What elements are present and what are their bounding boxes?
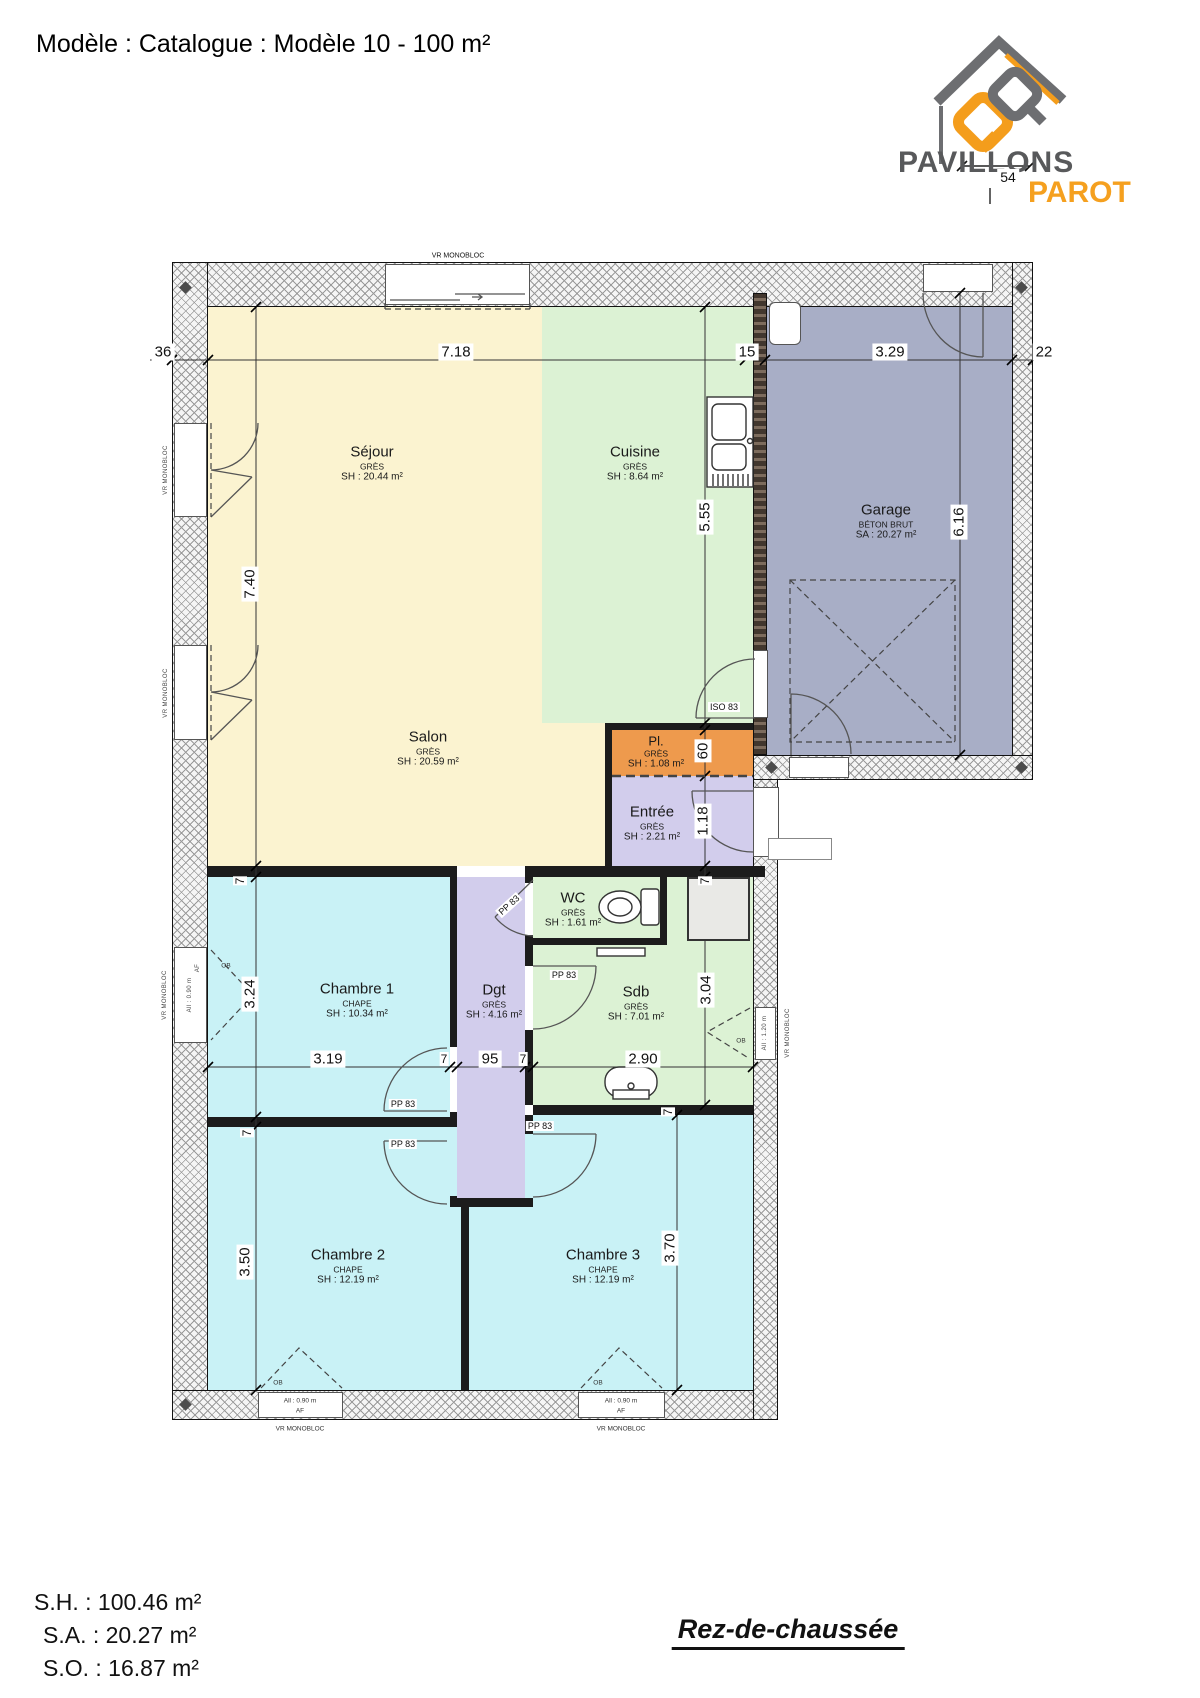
wall-main-right — [525, 866, 765, 877]
door-iso83-opening — [753, 650, 768, 718]
window-tag-allege: All : 0.90 m — [284, 1398, 317, 1405]
dim-7-40: 7.40 — [242, 566, 259, 601]
room-label-sdb: Sdb GRÈS SH : 7.01 m² — [608, 983, 664, 1023]
door-tag-iso83: ISO 83 — [708, 702, 740, 712]
window-tag-ob: OB — [273, 1380, 282, 1387]
dim-60: 60 — [695, 740, 712, 763]
room-dgt-fill — [457, 877, 525, 1198]
dim-wall-36: 36 — [152, 344, 175, 361]
wall-dgt-right-nub1 — [525, 877, 533, 883]
door-tag-pp83: PP 83 — [526, 1121, 554, 1131]
room-label-garage: Garage BÉTON BRUT SA : 20.27 m² — [856, 501, 917, 541]
window-tag-vr-monobloc: VR MONOBLOC — [162, 970, 168, 1019]
dim-1-18: 1.18 — [695, 803, 712, 838]
logo-dim-54: 54 — [997, 169, 1019, 185]
dim-wall-7: 7 — [240, 1129, 254, 1138]
wall-salon-entree — [605, 723, 612, 866]
door-garage-rear-opening — [789, 757, 849, 778]
room-label-dgt: Dgt GRÈS SH : 4.16 m² — [466, 981, 522, 1021]
window-tag-vr-monobloc: VR MONOBLOC — [430, 253, 487, 260]
room-label-wc: WC GRÈS SH : 1.61 m² — [545, 889, 601, 929]
door-tag-pp83: PP 83 — [550, 970, 578, 980]
surface-summary: S.H. : 100.46 m² S.A. : 20.27 m² S.O. : … — [34, 1586, 201, 1685]
door-tag-pp83: PP 83 — [389, 1139, 417, 1149]
dim-wall-15: 15 — [736, 344, 759, 361]
window-sejour-french — [174, 423, 207, 517]
wall-dgt-left-upper — [450, 877, 457, 1047]
room-label-chambre3: Chambre 3 CHAPE SH : 12.19 m² — [566, 1246, 640, 1286]
floor-level-title: Rez-de-chaussée — [672, 1614, 905, 1650]
dim-wall-7: 7 — [440, 1052, 449, 1066]
dim-3-50: 3.50 — [237, 1244, 254, 1279]
window-tag-vr-monobloc: VR MONOBLOC — [276, 1426, 325, 1433]
dim-95: 95 — [479, 1051, 502, 1068]
window-tag-af: AF — [296, 1408, 304, 1415]
dim-6-16: 6.16 — [951, 504, 968, 539]
window-tag-af: AF — [195, 964, 201, 972]
window-tag-allege: All : 0.90 m — [187, 978, 193, 1013]
surface-sa: S.A. : 20.27 m² — [34, 1619, 201, 1652]
dim-3-70: 3.70 — [662, 1230, 679, 1265]
window-tag-vr-monobloc: VR MONOBLOC — [597, 1426, 646, 1433]
wall-placard-top — [605, 723, 753, 730]
room-label-cuisine: Cuisine GRÈS SH : 8.64 m² — [607, 443, 663, 483]
window-tag-af: AF — [617, 1408, 625, 1415]
wall-exterior-right-garage — [1012, 262, 1033, 780]
wall-ch2-ch3 — [461, 1207, 469, 1390]
window-tag-ob: OB — [593, 1380, 602, 1387]
room-label-placard: Pl. GRÈS SH : 1.08 m² — [628, 733, 684, 770]
page-title: Modèle : Catalogue : Modèle 10 - 100 m² — [36, 30, 490, 59]
window-tag-allege: All : 0.90 m — [605, 1398, 638, 1405]
floorplan-sheet: Modèle : Catalogue : Modèle 10 - 100 m² … — [0, 0, 1200, 1698]
door-garage-opening — [923, 264, 993, 292]
dim-3-19: 3.19 — [310, 1051, 345, 1068]
dim-5-55: 5.55 — [697, 499, 714, 534]
room-label-sejour: Séjour GRÈS SH : 20.44 m² — [341, 443, 403, 483]
window-tag-vr-monobloc: VR MONOBLOC — [785, 1008, 791, 1057]
wall-exterior-top — [172, 262, 1033, 307]
wall-dgt-left-mid — [450, 1112, 457, 1127]
room-salon-fill-ext — [542, 723, 605, 866]
wall-sdb-ch3 — [533, 1105, 753, 1115]
window-salon-french — [174, 645, 207, 740]
dim-wall-7: 7 — [519, 1052, 528, 1066]
dim-3-29: 3.29 — [872, 344, 907, 361]
wall-wc-right — [660, 877, 667, 945]
wall-main-left — [208, 866, 457, 877]
window-tag-vr-monobloc: VR MONOBLOC — [163, 668, 169, 717]
logo-brand-pavillons: PAVILLONS — [898, 146, 1074, 180]
dim-3-04: 3.04 — [698, 972, 715, 1007]
room-label-entree: Entrée GRÈS SH : 2.21 m² — [624, 803, 680, 843]
window-tag-vr-monobloc: VR MONOBLOC — [163, 445, 169, 494]
window-tag-ob: OB — [221, 963, 230, 970]
garage-equipment-box — [769, 302, 801, 345]
dim-7-18: 7.18 — [438, 344, 473, 361]
surface-sh: S.H. : 100.46 m² — [34, 1586, 201, 1619]
wall-ch1-ch2 — [208, 1117, 450, 1127]
window-tag-allege: All : 1.20 m — [762, 1016, 768, 1051]
door-tag-pp83: PP 83 — [389, 1099, 417, 1109]
dim-wall-7: 7 — [698, 877, 712, 886]
room-cuisine-fill — [542, 307, 753, 723]
window-tag-ob: OB — [736, 1038, 745, 1045]
window-sejour-bay — [385, 264, 530, 305]
dim-wall-7: 7 — [233, 877, 247, 886]
dim-wall-22: 22 — [1033, 344, 1056, 361]
room-label-chambre1: Chambre 1 CHAPE SH : 10.34 m² — [320, 980, 394, 1020]
wall-wc-bottom — [525, 938, 667, 945]
dim-3-24: 3.24 — [242, 976, 259, 1011]
room-label-chambre2: Chambre 2 CHAPE SH : 12.19 m² — [311, 1246, 385, 1286]
shower-tray — [687, 877, 750, 941]
wall-dgt-right-mid — [525, 1030, 533, 1105]
logo-brand-parot: PAROT — [1028, 176, 1131, 210]
entrance-step — [768, 838, 832, 860]
room-label-salon: Salon GRÈS SH : 20.59 m² — [397, 728, 459, 768]
surface-so: S.O. : 16.87 m² — [34, 1652, 201, 1685]
wall-dgt-end — [450, 1198, 533, 1207]
dim-2-90: 2.90 — [625, 1051, 660, 1068]
dim-wall-7: 7 — [661, 1108, 675, 1117]
